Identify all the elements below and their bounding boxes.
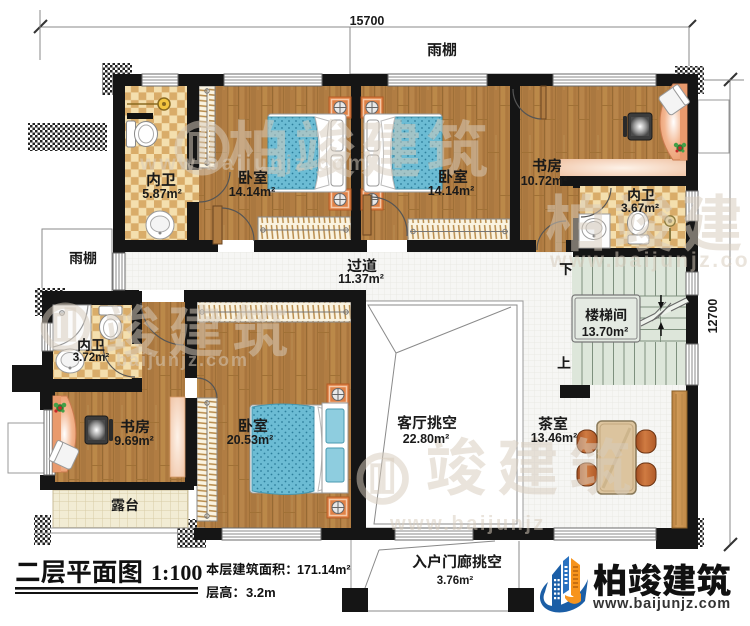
svg-text:14.14m²: 14.14m² — [428, 184, 475, 198]
svg-text:3.67m²: 3.67m² — [621, 201, 659, 215]
svg-text:9.69m²: 9.69m² — [114, 434, 154, 448]
svg-text:171.14m²: 171.14m² — [297, 563, 351, 577]
svg-text:www.baijunjz.com: www.baijunjz.com — [549, 249, 750, 272]
svg-text:3.76m²: 3.76m² — [437, 575, 474, 587]
svg-text:13.70m²: 13.70m² — [582, 325, 629, 339]
svg-text:15700: 15700 — [350, 14, 385, 28]
svg-text:www.baijunjz.com: www.baijunjz.com — [592, 596, 731, 612]
svg-text:12700: 12700 — [706, 299, 720, 334]
svg-text:22.80m²: 22.80m² — [403, 432, 450, 446]
svg-text:baijunjz.com: baijunjz.com — [116, 350, 249, 370]
svg-text:14.14m²: 14.14m² — [229, 185, 276, 199]
svg-text:13.46m²: 13.46m² — [531, 431, 578, 445]
svg-text:1:100: 1:100 — [151, 560, 202, 585]
svg-text:www.baijunjz: www.baijunjz — [389, 513, 546, 535]
svg-text:10.72m²: 10.72m² — [521, 174, 568, 188]
svg-text:3.2m: 3.2m — [246, 585, 276, 600]
svg-text:11.37m²: 11.37m² — [338, 272, 384, 286]
svg-text:20.53m²: 20.53m² — [227, 433, 274, 447]
svg-text:3.72m²: 3.72m² — [73, 352, 110, 364]
svg-text:5.87m²: 5.87m² — [142, 187, 182, 201]
